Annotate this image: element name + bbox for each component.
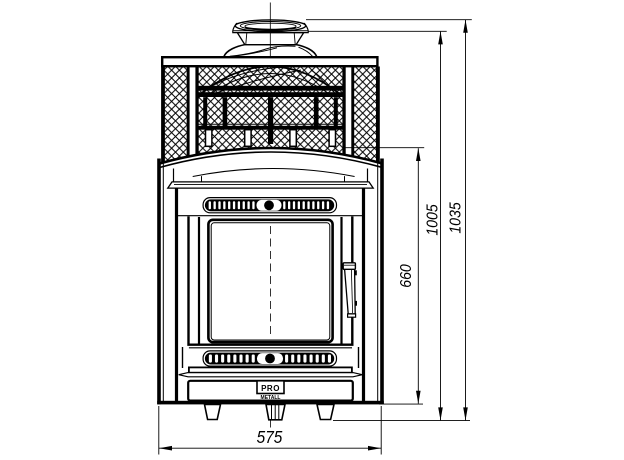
- svg-text:METALL: METALL: [261, 395, 281, 401]
- svg-text:PRO: PRO: [261, 384, 280, 393]
- svg-text:1005: 1005: [424, 204, 442, 236]
- svg-text:1035: 1035: [447, 202, 465, 234]
- svg-text:575: 575: [257, 428, 283, 447]
- svg-text:660: 660: [397, 264, 415, 288]
